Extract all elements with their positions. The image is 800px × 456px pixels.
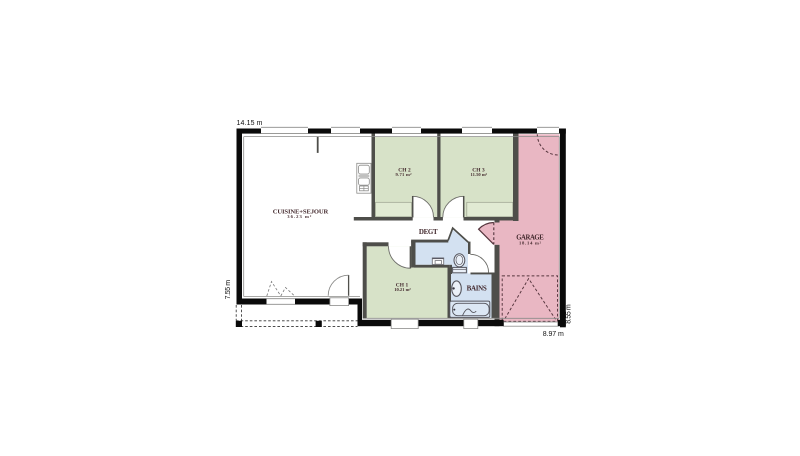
svg-text:8.97 m: 8.97 m (543, 331, 564, 338)
svg-text:14.15 m: 14.15 m (237, 120, 263, 127)
svg-text:10.21 m²: 10.21 m² (394, 287, 411, 292)
svg-text:36.23 m²: 36.23 m² (287, 214, 312, 219)
svg-text:18.14 m²: 18.14 m² (519, 241, 542, 246)
svg-text:11.50 m²: 11.50 m² (471, 172, 488, 177)
svg-text:9.71 m²: 9.71 m² (396, 172, 413, 177)
svg-text:8.55 m: 8.55 m (566, 304, 573, 324)
svg-text:DEGT: DEGT (419, 228, 438, 236)
svg-text:BAINS: BAINS (467, 284, 487, 292)
svg-text:7.55 m: 7.55 m (225, 280, 232, 300)
